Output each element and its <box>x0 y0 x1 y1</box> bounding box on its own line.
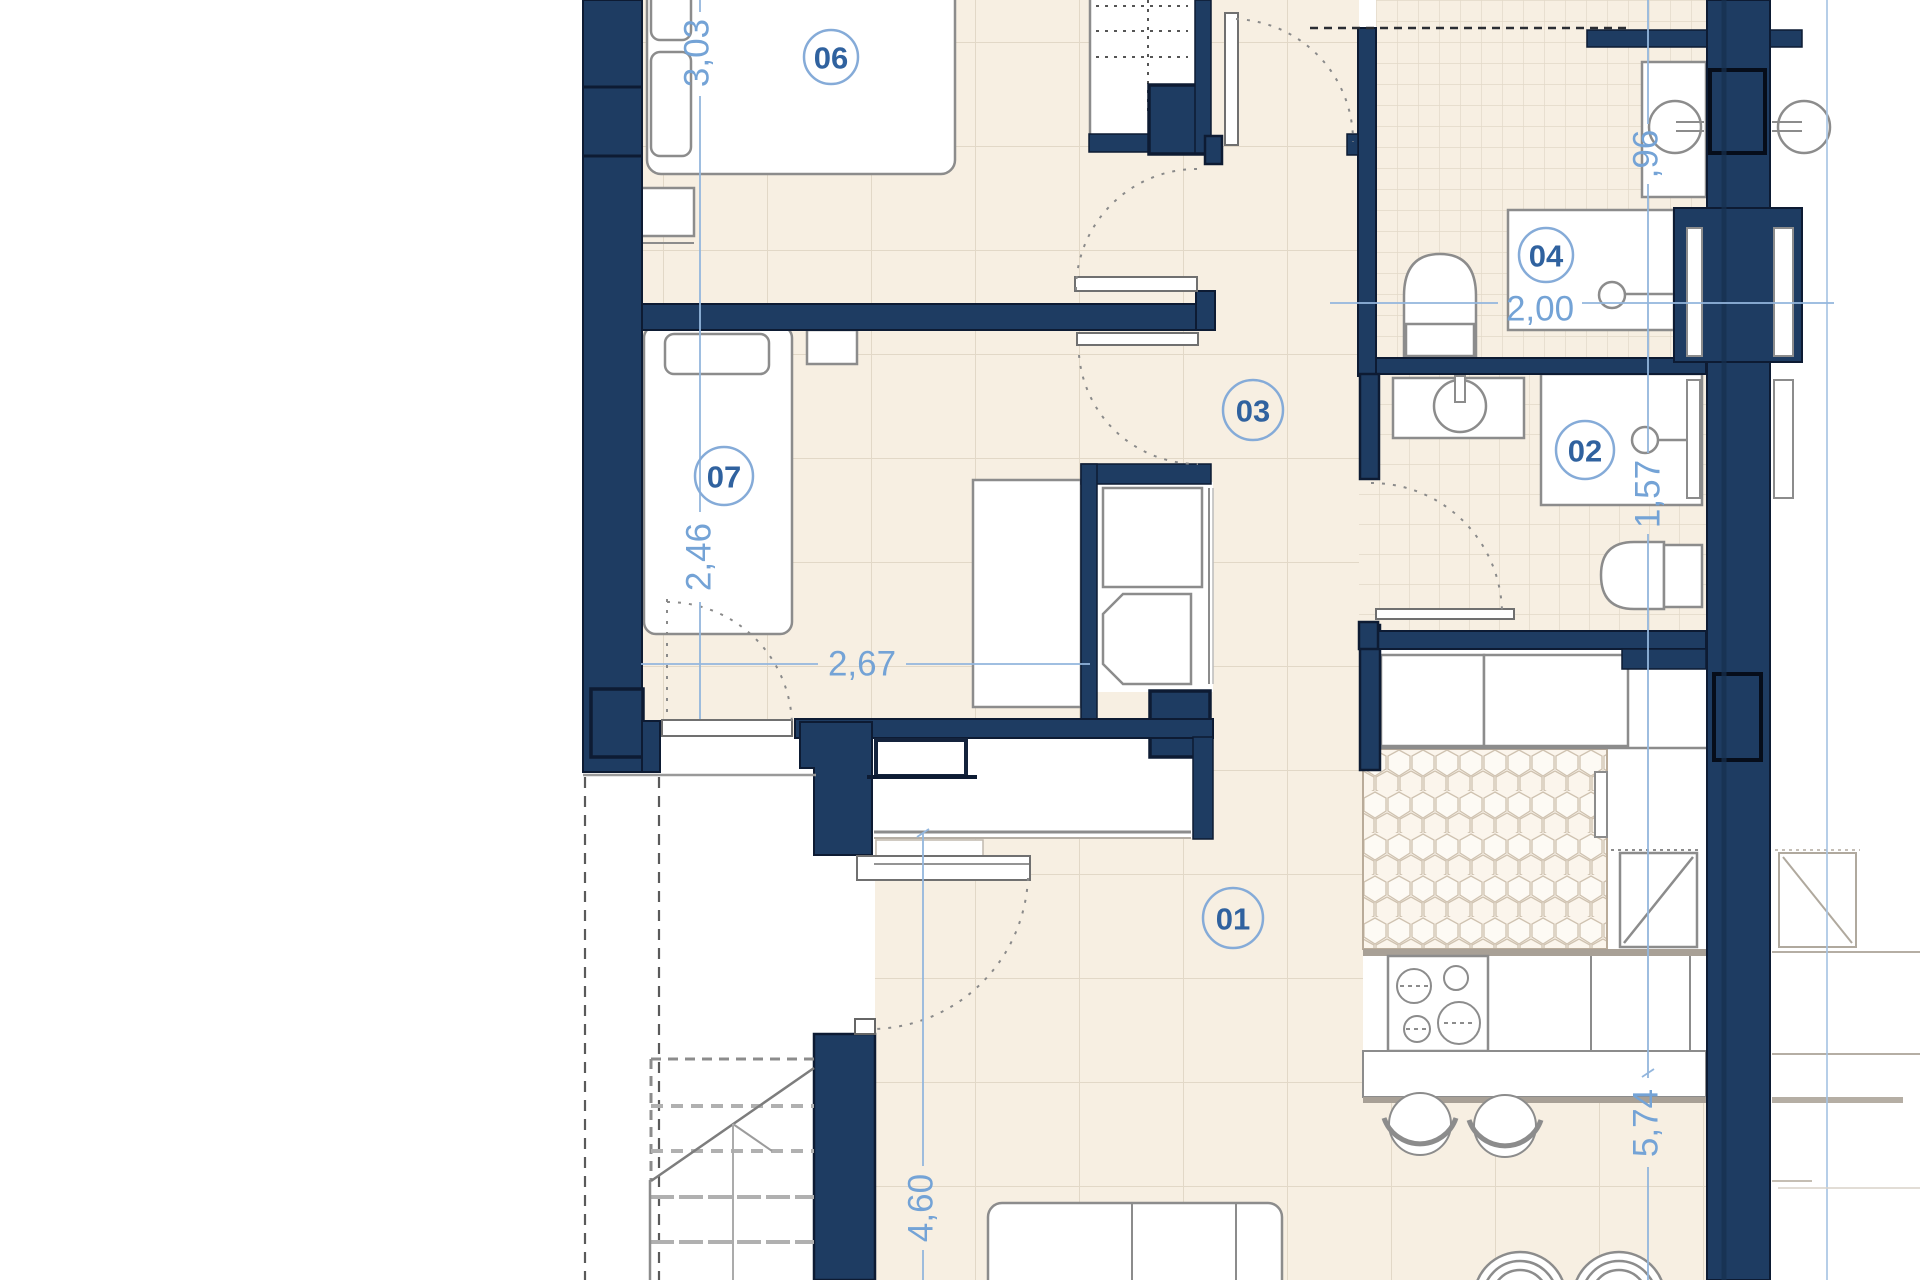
svg-text:2,00: 2,00 <box>1506 290 1574 329</box>
svg-text:01: 01 <box>1216 902 1250 937</box>
svg-text:06: 06 <box>814 41 848 76</box>
svg-text:02: 02 <box>1568 434 1602 469</box>
svg-text:2,46: 2,46 <box>680 523 719 591</box>
svg-text:5,74: 5,74 <box>1627 1089 1666 1157</box>
svg-text:2,67: 2,67 <box>828 645 896 684</box>
svg-text:3,03: 3,03 <box>678 19 717 87</box>
svg-text:04: 04 <box>1529 239 1564 274</box>
svg-text:4,60: 4,60 <box>902 1174 941 1242</box>
svg-text:1,57: 1,57 <box>1629 460 1668 528</box>
svg-text:03: 03 <box>1236 394 1270 429</box>
svg-text:07: 07 <box>707 460 741 495</box>
svg-text:,96: ,96 <box>1627 130 1666 179</box>
